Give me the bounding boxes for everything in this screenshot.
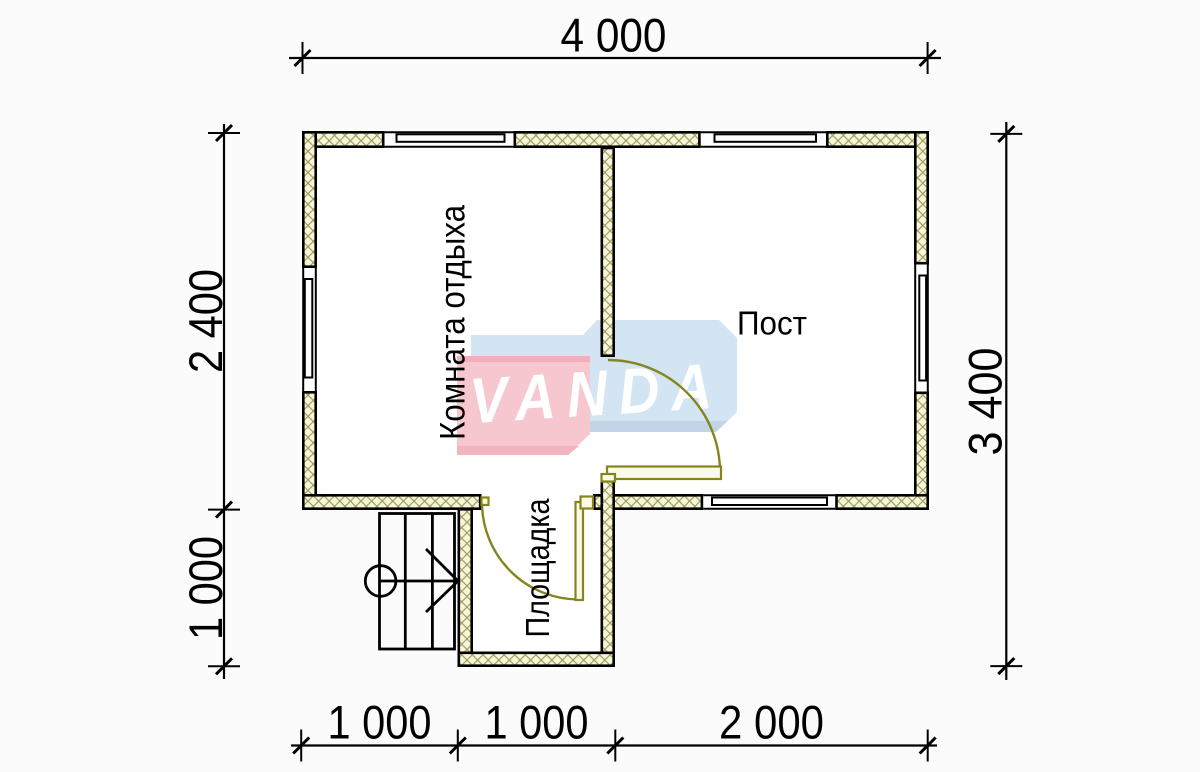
svg-text:1 000: 1 000 [328, 696, 432, 749]
svg-text:2 000: 2 000 [719, 696, 824, 749]
svg-text:Площадка: Площадка [519, 498, 556, 638]
svg-text:4 000: 4 000 [561, 9, 667, 62]
svg-text:1 000: 1 000 [485, 696, 589, 749]
svg-text:Комната отдыха: Комната отдыха [434, 205, 473, 440]
svg-text:Пост: Пост [737, 305, 807, 342]
svg-text:3 400: 3 400 [959, 348, 1012, 456]
svg-text:1 000: 1 000 [179, 536, 232, 640]
svg-text:2 400: 2 400 [179, 269, 232, 373]
